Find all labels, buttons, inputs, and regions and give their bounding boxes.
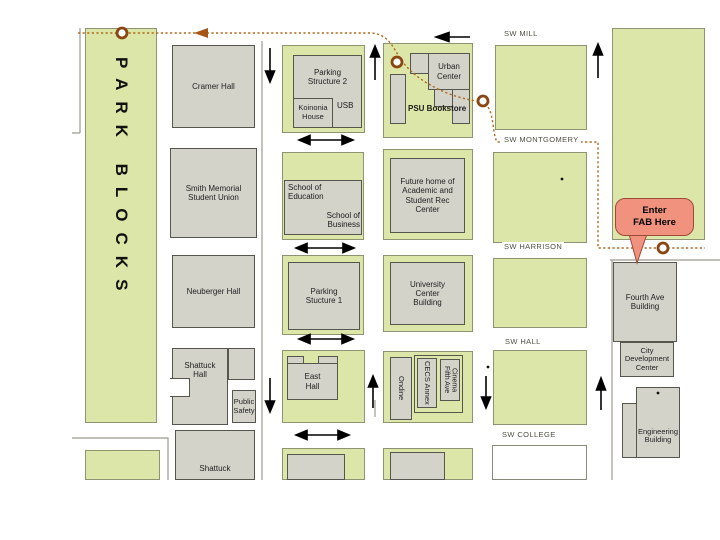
enter-fab-callout: Enter FAB Here — [615, 198, 694, 236]
building-col3-bottom — [390, 452, 445, 480]
label-public-safety: Public Safety — [233, 398, 255, 415]
up-arrow-icon — [594, 44, 603, 78]
label-university-center: University Center Building — [405, 280, 450, 308]
label-koinonia-house: Koinonia House — [294, 104, 332, 121]
two-way-arrow-icon — [299, 335, 353, 344]
building-engineering: Engineering Building — [636, 387, 680, 458]
building-east-hall: East Hall — [287, 363, 338, 400]
label-fifth-ave-cinema: Fifth Ave Cinema — [442, 360, 457, 400]
callout-line1: Enter — [642, 205, 666, 217]
block-sw-harrison — [493, 258, 587, 328]
down-arrow-icon — [266, 48, 275, 82]
building-mid-bottom — [287, 454, 345, 480]
building-parking-structure-1: Parking Stucture 1 — [288, 262, 360, 330]
shattuck-notch — [170, 378, 190, 397]
building-cramer-hall: Cramer Hall — [172, 45, 255, 128]
block-sw-college-white — [492, 445, 587, 480]
building-koinonia-house: Koinonia House — [293, 98, 333, 128]
block-sw-mill — [495, 45, 587, 130]
building-shattuck-2: Shattuck — [175, 430, 255, 480]
park-blocks-label: PARK BLOCKS — [111, 29, 131, 301]
label-cecs-annex: CECS Annex — [423, 361, 431, 405]
two-way-arrow-icon — [296, 244, 354, 253]
two-way-arrow-icon — [296, 431, 349, 440]
block-sw-hall — [493, 350, 587, 425]
building-university-center: University Center Building — [390, 262, 465, 325]
dot-icon — [487, 366, 490, 369]
label-smith-memorial: Smith Memorial Student Union — [179, 184, 249, 202]
two-way-arrow-icon — [299, 136, 353, 145]
street-label-sw-hall: SW HALL — [503, 337, 543, 346]
street-label-sw-harrison: SW HARRISON — [502, 242, 564, 251]
building-fifth-ave-cinema: Fifth Ave Cinema — [440, 359, 460, 401]
label-future-home: Future home of Academic and Student Rec … — [400, 177, 456, 214]
street-label-sw-college: SW COLLEGE — [500, 430, 558, 439]
street-label-sw-mill: SW MILL — [502, 29, 540, 38]
up-arrow-icon — [371, 46, 380, 80]
label-shattuck-hall: Shattuck Hall — [178, 349, 223, 379]
label-city-development: City Development Center — [621, 347, 673, 373]
label-school-of-education: School of Education — [288, 184, 333, 202]
urban-center-wing — [410, 53, 429, 74]
building-neuberger-hall: Neuberger Hall — [172, 255, 255, 328]
park-blocks-strip: PARK BLOCKS — [85, 28, 157, 423]
building-future-home: Future home of Academic and Student Rec … — [390, 158, 465, 233]
building-cecs-annex: CECS Annex — [417, 358, 437, 408]
route-marker-icon — [658, 243, 668, 253]
building-smith-memorial: Smith Memorial Student Union — [170, 148, 257, 238]
label-neuberger-hall: Neuberger Hall — [186, 287, 241, 296]
up-arrow-icon — [369, 376, 378, 408]
label-east-hall: East Hall — [298, 372, 328, 390]
building-public-safety: Public Safety — [232, 390, 256, 423]
label-parking-structure-2: Parking Structure 2 — [303, 56, 353, 86]
down-arrow-icon — [482, 376, 491, 408]
down-arrow-icon — [266, 378, 275, 412]
route-marker-icon — [478, 96, 488, 106]
campus-map: PARK BLOCKS Cramer Hall Smith Memorial S… — [0, 0, 720, 540]
callout-line2: FAB Here — [633, 217, 676, 229]
label-cramer-hall: Cramer Hall — [192, 82, 235, 91]
label-urban-center: Urban Center — [434, 62, 464, 80]
label-shattuck-2: Shattuck — [199, 464, 230, 479]
building-urban-center: Urban Center — [428, 53, 470, 90]
street-label-sw-montgomery: SW MONTGOMERY — [502, 135, 581, 144]
label-fourth-ave: Fourth Ave Building — [623, 293, 668, 311]
label-psu-bookstore: PSU Bookstore — [408, 105, 472, 114]
building-fourth-ave: Fourth Ave Building — [613, 262, 677, 342]
block-sw-montgomery — [493, 152, 587, 243]
label-engineering: Engineering Building — [637, 428, 679, 457]
label-usb: USB — [337, 102, 353, 111]
label-school-of-business: School of Business — [316, 212, 360, 230]
label-ondine: Ondine — [397, 376, 405, 400]
bookstore-west-building — [390, 74, 406, 124]
left-arrow-icon — [436, 33, 470, 42]
block-bottom-left — [85, 450, 160, 480]
label-parking-structure-1: Parking Stucture 1 — [302, 287, 347, 305]
building-shattuck-annex — [228, 348, 255, 380]
up-arrow-icon — [597, 378, 606, 410]
building-ondine: Ondine — [390, 357, 412, 420]
route-direction-arrow-icon — [194, 28, 208, 38]
building-city-development: City Development Center — [620, 342, 674, 377]
